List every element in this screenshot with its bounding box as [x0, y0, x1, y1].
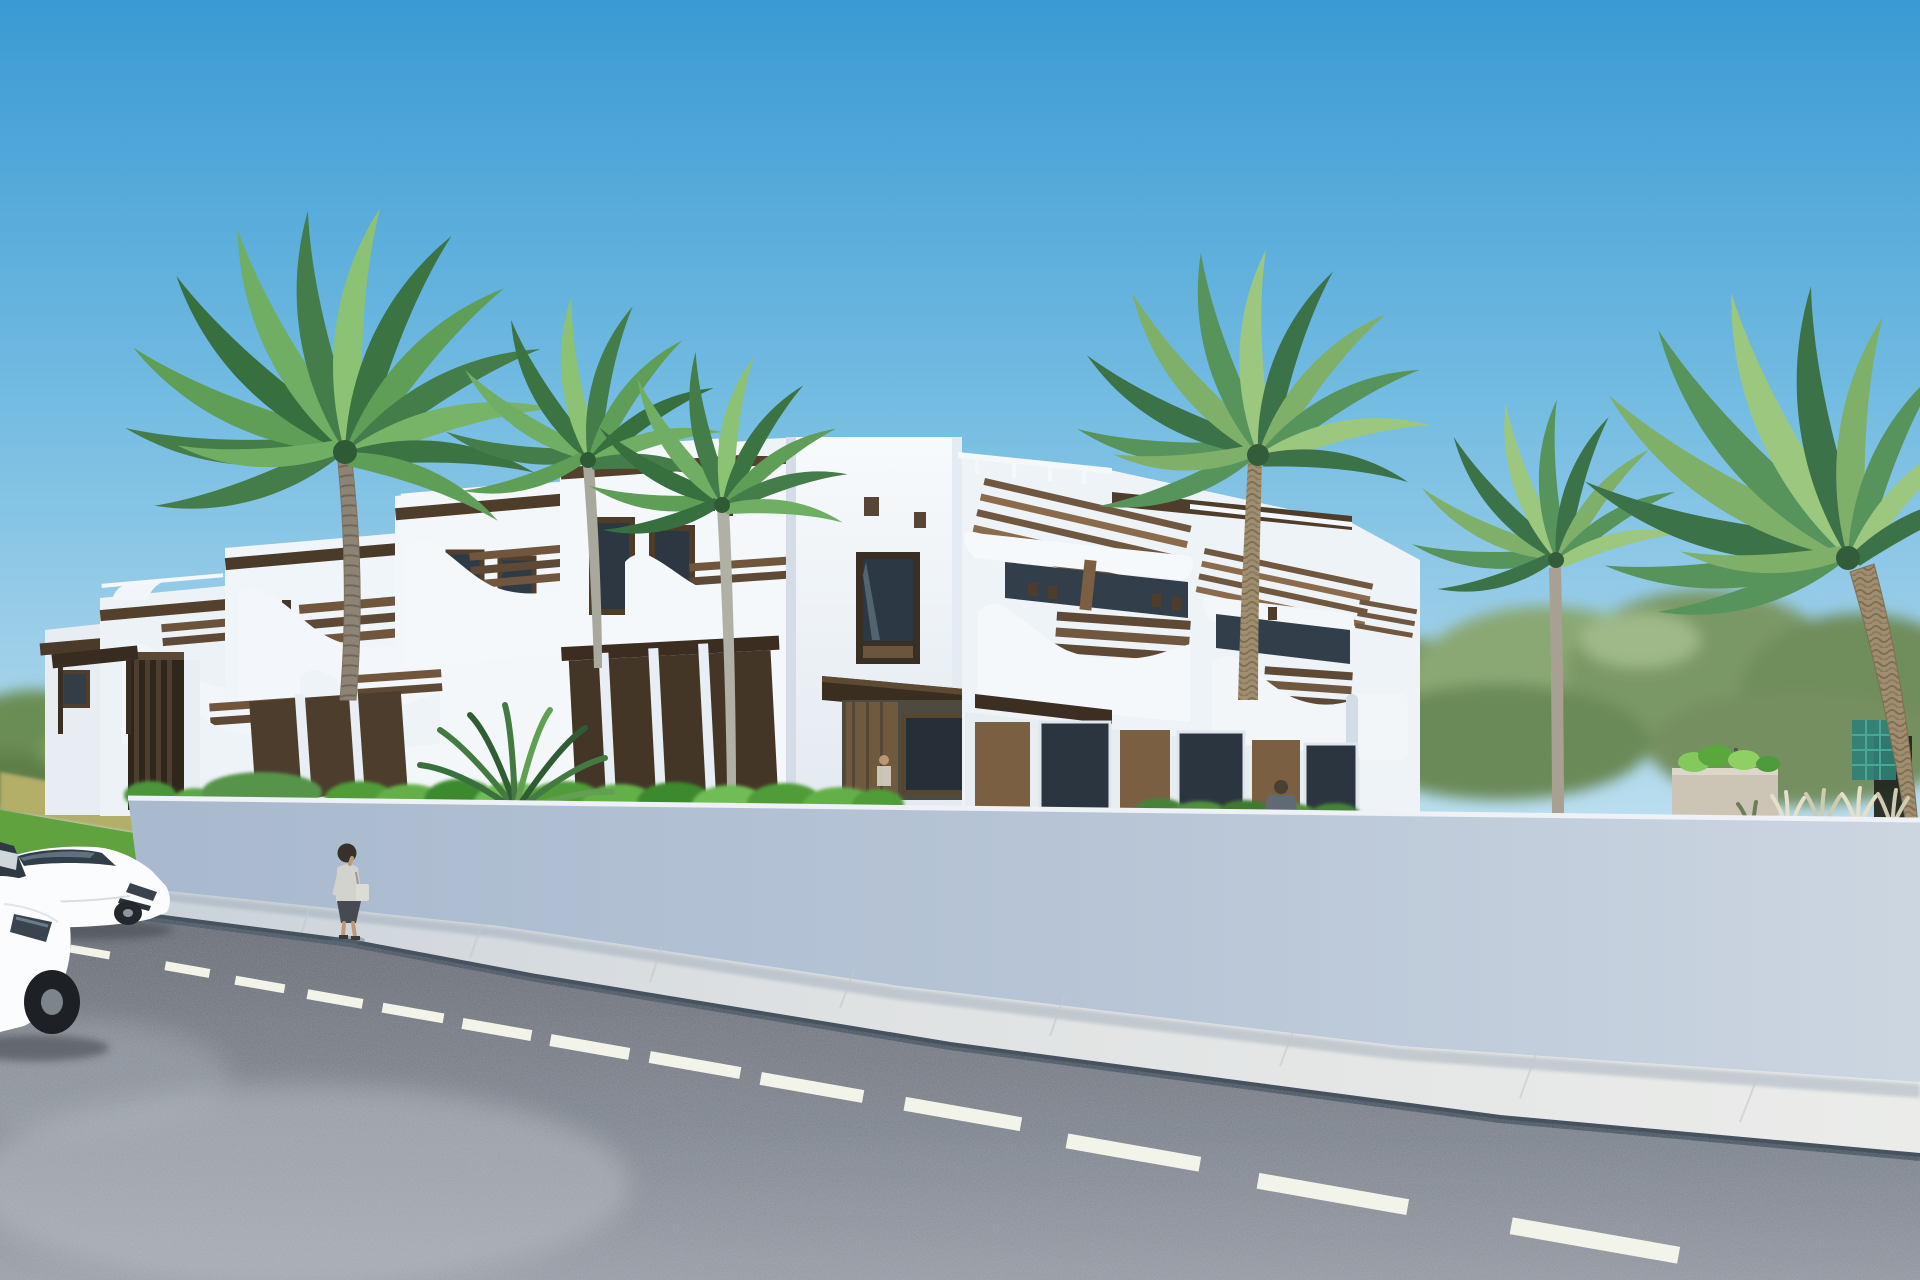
window	[62, 672, 88, 706]
figure-at-window	[877, 755, 891, 786]
entrance	[842, 700, 976, 800]
scene-canvas	[0, 0, 1920, 1280]
vent-opening	[914, 512, 926, 528]
vent-opening	[864, 497, 879, 516]
render-image	[0, 0, 1920, 1280]
hair	[338, 844, 357, 863]
tall-window	[856, 552, 920, 664]
bag	[356, 884, 369, 901]
